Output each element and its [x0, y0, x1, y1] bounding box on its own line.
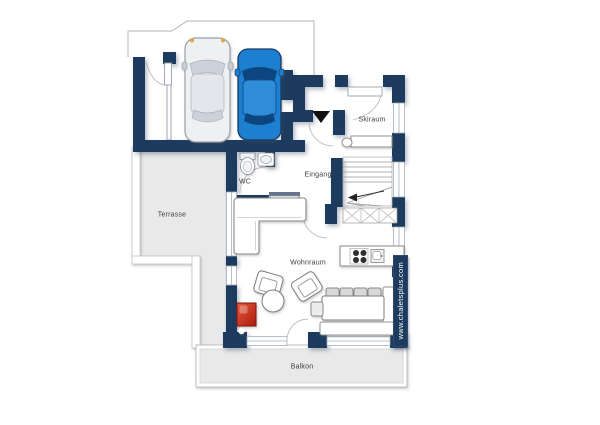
toilet [240, 153, 255, 175]
l-sofa [234, 198, 306, 254]
carport-door-leaf [165, 63, 172, 85]
round-table [262, 290, 284, 312]
room-label-wohnraum: Wohnraum [290, 260, 326, 267]
dining-chair [311, 302, 323, 316]
kitchen-sink [371, 250, 384, 263]
ski-bench [351, 136, 392, 147]
livingroom-door-arc [303, 214, 327, 238]
corner-bench-bottom [320, 322, 403, 335]
floorplan-canvas: Terrasse WC Eingang Skiraum Wohnraum Bal… [0, 0, 600, 425]
watermark-text: www.chaletsplus.com [396, 262, 405, 339]
wardrobe-under-stairs [343, 208, 397, 223]
watermark-bar: www.chaletsplus.com [393, 255, 408, 347]
floorplan-drawing [0, 0, 600, 425]
ski-boot-dryer [342, 138, 352, 147]
dining-table [322, 296, 384, 320]
skiraum-door-leaf [348, 87, 382, 96]
room-label-eingang: Eingang [304, 172, 331, 179]
stove [350, 249, 368, 265]
balcony-door-arc [287, 319, 308, 340]
wash-basin [258, 153, 274, 166]
room-label-skiraum: Skiraum [358, 117, 385, 124]
entrance-marker [312, 111, 330, 123]
room-label-wc: WC [239, 179, 251, 186]
carport-door-arc [146, 61, 164, 85]
room-label-balkon: Balkon [291, 364, 314, 371]
floor-outlet [238, 328, 244, 334]
room-label-terrasse: Terrasse [158, 212, 186, 219]
silver-car [182, 38, 233, 142]
winder-staircase [343, 157, 392, 206]
furniture [234, 136, 404, 335]
terrace-floor [140, 152, 226, 348]
blue-car [235, 49, 284, 140]
stair-direction-arrow [348, 194, 357, 202]
entrance-door-arc [309, 122, 333, 146]
armchair [290, 270, 324, 302]
